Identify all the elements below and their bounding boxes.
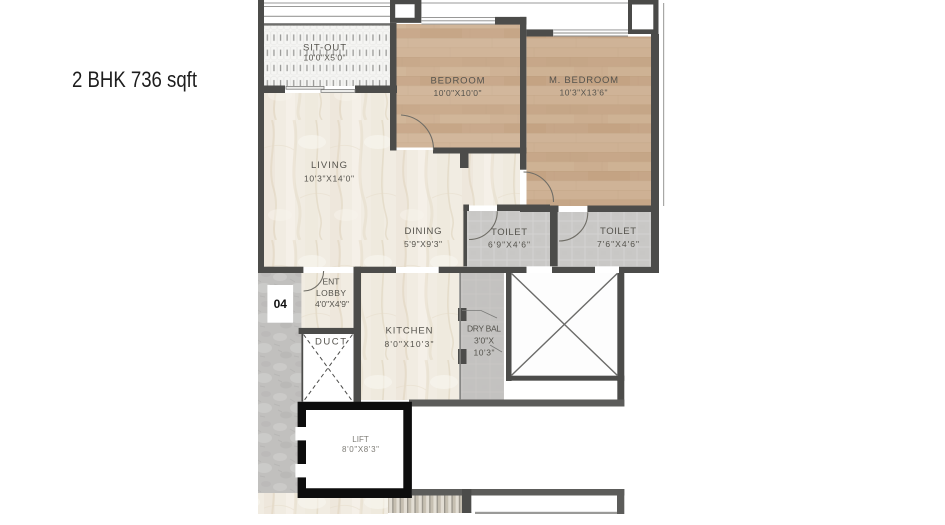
svg-text:TOILET: TOILET — [491, 227, 527, 238]
svg-text:6'9"X4'6": 6'9"X4'6" — [488, 240, 530, 250]
svg-text:LIFT: LIFT — [352, 435, 369, 444]
svg-text:04: 04 — [274, 297, 288, 311]
svg-text:2 BHK 736 sqft: 2 BHK 736 sqft — [72, 67, 198, 92]
svg-text:10'3"X14'0": 10'3"X14'0" — [304, 174, 354, 184]
svg-text:DINING: DINING — [405, 226, 442, 237]
svg-text:TOILET: TOILET — [600, 226, 636, 237]
svg-text:8'0"X8'3": 8'0"X8'3" — [342, 445, 379, 454]
svg-text:7'6"X4'6": 7'6"X4'6" — [597, 239, 639, 249]
svg-text:LIVING: LIVING — [311, 160, 347, 171]
svg-text:KITCHEN: KITCHEN — [386, 326, 433, 337]
svg-text:3'0"X: 3'0"X — [474, 336, 494, 346]
svg-text:DRY BAL: DRY BAL — [467, 324, 501, 334]
svg-text:M. BEDROOM: M. BEDROOM — [549, 75, 618, 86]
svg-text:ENT: ENT — [323, 277, 340, 287]
svg-text:10'3": 10'3" — [474, 348, 495, 358]
svg-text:10'0"X10'0": 10'0"X10'0" — [434, 88, 482, 98]
svg-text:10'0"X5'0": 10'0"X5'0" — [304, 53, 346, 63]
svg-text:LOBBY: LOBBY — [316, 288, 346, 298]
svg-text:5'9"X9'3": 5'9"X9'3" — [404, 239, 442, 249]
svg-text:10'3"X13'6": 10'3"X13'6" — [560, 88, 608, 98]
svg-text:BEDROOM: BEDROOM — [431, 76, 485, 87]
svg-text:4'0"X4'9": 4'0"X4'9" — [315, 299, 349, 309]
